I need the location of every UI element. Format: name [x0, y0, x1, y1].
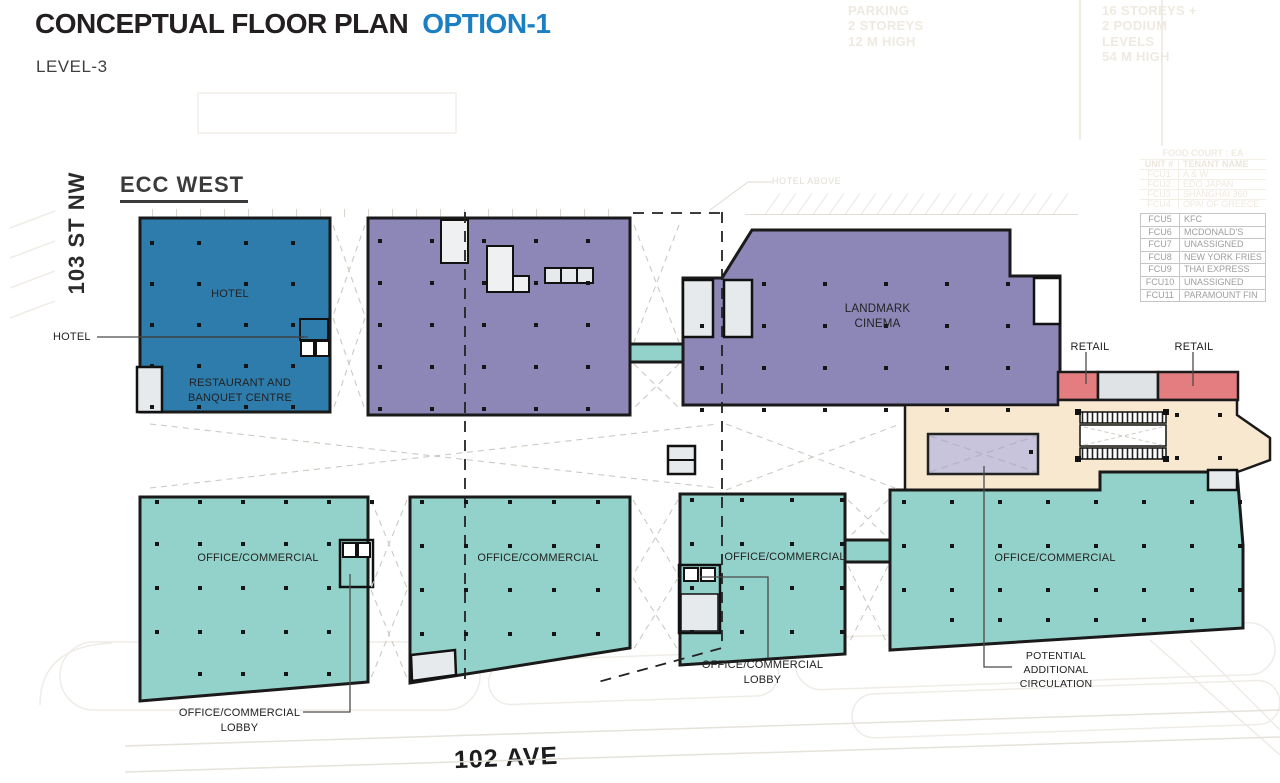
column-dot — [241, 500, 245, 504]
column-dot — [284, 630, 288, 634]
column-dot — [690, 586, 694, 590]
potential-circulation-box — [928, 434, 1038, 474]
column-dot — [508, 588, 512, 592]
office-block-1 — [140, 497, 368, 701]
food-court-tenant: EDO JAPAN — [1179, 180, 1266, 189]
column-dot — [155, 586, 159, 590]
food-court-unit: FCU9 — [1141, 264, 1180, 276]
column-dot — [327, 542, 331, 546]
cinema-right-vestibule — [1034, 278, 1060, 324]
column-dot — [586, 281, 590, 285]
column-dot — [241, 586, 245, 590]
column-dot — [762, 366, 766, 370]
food-court-tenant: THAI EXPRESS — [1180, 264, 1265, 276]
food-court-row: FCU1A & W — [1140, 169, 1266, 179]
column-dot — [884, 366, 888, 370]
food-court-unit: FCU2 — [1140, 180, 1179, 189]
office-label-1: OFFICE/COMMERCIAL — [178, 551, 338, 566]
column-dot — [197, 323, 201, 327]
column-dot — [1046, 618, 1050, 622]
column-dot — [1218, 413, 1222, 417]
column-dot — [762, 282, 766, 286]
column-dot — [945, 366, 949, 370]
column-dot — [327, 672, 331, 676]
column-dot — [155, 500, 159, 504]
column-dot — [464, 500, 468, 504]
column-dot — [840, 498, 844, 502]
column-dot — [198, 500, 202, 504]
column-dot — [586, 239, 590, 243]
column-dot — [1094, 618, 1098, 622]
food-court-unit: FCU7 — [1141, 239, 1180, 251]
food-court-row: FCU11PARAMOUNT FIN — [1141, 290, 1265, 302]
food-court-header-row: UNIT # TENANT NAME — [1140, 159, 1266, 169]
office-lobby-central-callout: OFFICE/COMMERCIAL LOBBY — [695, 658, 830, 687]
potential-circulation-callout: POTENTIAL ADDITIONAL CIRCULATION — [1006, 650, 1106, 692]
column-dot — [945, 408, 949, 412]
retail-label-2: RETAIL — [1159, 340, 1229, 355]
column-dot — [945, 324, 949, 328]
column-dot — [1006, 324, 1010, 328]
column-dot — [823, 282, 827, 286]
column-dot — [902, 500, 906, 504]
column-dot — [284, 586, 288, 590]
food-court-header-tenant: TENANT NAME — [1179, 160, 1266, 169]
column-dot — [1006, 282, 1010, 286]
food-court-row: FCU10UNASSIGNED — [1141, 277, 1265, 290]
food-court-row: FCU2EDO JAPAN — [1140, 179, 1266, 189]
column-dot — [552, 632, 556, 636]
column-dot — [534, 365, 538, 369]
column-dot — [1006, 366, 1010, 370]
column-dot — [1190, 588, 1194, 592]
column-dot — [1175, 413, 1179, 417]
column-dot — [197, 241, 201, 245]
food-court-tenant: OPA! OF GREECE — [1179, 200, 1266, 209]
column-dot — [1142, 500, 1146, 504]
column-dot — [1094, 588, 1098, 592]
column-dot — [508, 544, 512, 548]
food-court-row: FCU6MCDONALD'S — [1141, 227, 1265, 240]
column-dot — [291, 241, 295, 245]
column-dot — [596, 544, 600, 548]
column-dot — [740, 586, 744, 590]
food-court-faint-rows: FCU1A & WFCU2EDO JAPANFCU3SHANGHAI 360FC… — [1140, 169, 1266, 209]
food-court-row: FCU4OPA! OF GREECE — [1140, 199, 1266, 209]
column-dot — [508, 632, 512, 636]
office-2-entry-box — [411, 650, 456, 681]
column-dot — [327, 586, 331, 590]
column-dot — [244, 405, 248, 409]
column-dot — [1238, 588, 1242, 592]
column-dot — [155, 630, 159, 634]
column-dot — [1175, 456, 1179, 460]
column-dot — [740, 498, 744, 502]
food-court-faint-section: UNIT # TENANT NAME FCU1A & WFCU2EDO JAPA… — [1140, 159, 1266, 209]
column-dot — [198, 586, 202, 590]
column-dot — [552, 544, 556, 548]
food-court-table: FOOD COURT : EA UNIT # TENANT NAME FCU1A… — [1140, 148, 1266, 302]
column-dot — [482, 323, 486, 327]
column-dot — [998, 618, 1002, 622]
column-dot — [1238, 544, 1242, 548]
column-dot — [823, 408, 827, 412]
column-dot — [430, 407, 434, 411]
food-court-unit: FCU1 — [1140, 170, 1179, 179]
retail-core-block — [1098, 372, 1158, 400]
column-dot — [998, 588, 1002, 592]
food-court-row: FCU3SHANGHAI 360 — [1140, 189, 1266, 199]
food-court-unit: FCU10 — [1141, 277, 1180, 289]
column-dot — [1190, 618, 1194, 622]
column-dot — [762, 408, 766, 412]
column-dot — [241, 542, 245, 546]
column-dot — [378, 407, 382, 411]
column-dot — [508, 500, 512, 504]
column-dot — [552, 588, 556, 592]
column-dot — [1094, 500, 1098, 504]
hotel-region-label: HOTEL — [185, 287, 275, 302]
column-dot — [420, 588, 424, 592]
column-dot — [284, 500, 288, 504]
food-court-unit: FCU4 — [1140, 200, 1179, 209]
column-dot — [370, 500, 374, 504]
column-dot — [430, 281, 434, 285]
food-court-unit: FCU8 — [1141, 252, 1180, 264]
column-dot — [998, 500, 1002, 504]
food-court-row: FCU9THAI EXPRESS — [1141, 264, 1265, 277]
escalators — [1075, 409, 1169, 462]
office-label-3: OFFICE/COMMERCIAL — [705, 550, 865, 565]
column-dot — [950, 588, 954, 592]
column-dot — [690, 498, 694, 502]
food-court-row: FCU8NEW YORK FRIES — [1141, 252, 1265, 265]
column-dot — [1218, 456, 1222, 460]
column-dot — [464, 632, 468, 636]
column-dot — [482, 239, 486, 243]
food-court-unit: FCU5 — [1141, 214, 1180, 226]
column-dot — [1046, 544, 1050, 548]
column-dot — [762, 324, 766, 328]
column-dot — [464, 544, 468, 548]
column-dot — [150, 405, 154, 409]
column-dot — [284, 542, 288, 546]
column-dot — [244, 282, 248, 286]
column-dot — [430, 365, 434, 369]
column-dot — [198, 630, 202, 634]
column-dot — [378, 323, 382, 327]
column-dot — [840, 542, 844, 546]
column-dot — [420, 632, 424, 636]
retail-block-2 — [1158, 372, 1238, 400]
restaurant-region-label: RESTAURANT AND BANQUET CENTRE — [160, 376, 320, 405]
column-dot — [150, 282, 154, 286]
office-label-2: OFFICE/COMMERCIAL — [458, 551, 618, 566]
hotel-callout: HOTEL — [53, 330, 91, 345]
food-court-tenant: UNASSIGNED — [1180, 277, 1265, 289]
column-dot — [690, 630, 694, 634]
column-dot — [740, 542, 744, 546]
column-dot — [1046, 500, 1050, 504]
food-court-unit: FCU11 — [1141, 290, 1180, 302]
column-dot — [241, 630, 245, 634]
column-dot — [998, 544, 1002, 548]
column-dot — [1190, 500, 1194, 504]
column-dot — [950, 500, 954, 504]
column-dot — [150, 241, 154, 245]
food-court-rows: FCU5KFCFCU6MCDONALD'SFCU7UNASSIGNEDFCU8N… — [1140, 213, 1266, 302]
column-dot — [586, 323, 590, 327]
column-dot — [378, 365, 382, 369]
column-dot — [430, 239, 434, 243]
column-dot — [586, 365, 590, 369]
column-dot — [700, 408, 704, 412]
column-dot — [1238, 500, 1242, 504]
column-dot — [950, 544, 954, 548]
column-dot — [482, 407, 486, 411]
column-dot — [1142, 544, 1146, 548]
column-dot — [690, 542, 694, 546]
column-dot — [790, 586, 794, 590]
column-dot — [197, 364, 201, 368]
column-dot — [198, 672, 202, 676]
column-dot — [840, 586, 844, 590]
food-court-tenant: UNASSIGNED — [1180, 239, 1265, 251]
column-dot — [950, 618, 954, 622]
column-dot — [534, 323, 538, 327]
column-dot — [790, 542, 794, 546]
column-dot — [155, 542, 159, 546]
column-dot — [327, 630, 331, 634]
column-dot — [1046, 588, 1050, 592]
cinema-region-label: LANDMARK CINEMA — [810, 302, 945, 332]
column-dot — [197, 282, 201, 286]
column-dot — [1142, 588, 1146, 592]
food-court-tenant: PARAMOUNT FIN — [1180, 290, 1265, 302]
office-4-stair-box — [1208, 470, 1237, 490]
column-dot — [596, 588, 600, 592]
office-lobby-west-callout: OFFICE/COMMERCIAL LOBBY — [172, 706, 307, 735]
column-dot — [430, 323, 434, 327]
food-court-row: FCU5KFC — [1141, 214, 1265, 227]
column-dot — [945, 282, 949, 286]
column-dot — [291, 364, 295, 368]
column-dot — [902, 544, 906, 548]
column-dot — [534, 407, 538, 411]
column-dot — [534, 281, 538, 285]
food-court-row: FCU7UNASSIGNED — [1141, 239, 1265, 252]
column-dot — [534, 239, 538, 243]
column-dot — [197, 405, 201, 409]
column-dot — [700, 324, 704, 328]
column-dot — [586, 407, 590, 411]
column-dot — [1094, 544, 1098, 548]
column-dot — [378, 281, 382, 285]
column-dot — [244, 364, 248, 368]
column-dot — [244, 241, 248, 245]
column-dot — [790, 498, 794, 502]
retail-label-1: RETAIL — [1055, 340, 1125, 355]
food-court-header-unit: UNIT # — [1140, 160, 1179, 169]
floor-plan-canvas: CONCEPTUAL FLOOR PLANOPTION-1 LEVEL-3 PA… — [0, 0, 1280, 783]
office-label-4: OFFICE/COMMERCIAL — [975, 551, 1135, 566]
column-dot — [823, 366, 827, 370]
column-dot — [241, 672, 245, 676]
column-dot — [420, 544, 424, 548]
column-dot — [378, 239, 382, 243]
food-court-tenant: KFC — [1180, 214, 1265, 226]
column-dot — [884, 282, 888, 286]
column-dot — [464, 588, 468, 592]
column-dot — [1029, 450, 1033, 454]
food-court-unit: FCU6 — [1141, 227, 1180, 239]
food-court-tenant: A & W — [1179, 170, 1266, 179]
column-dot — [291, 405, 295, 409]
column-dot — [740, 630, 744, 634]
food-court-title: FOOD COURT : EA — [1140, 148, 1266, 159]
corridor-kiosk — [668, 446, 695, 474]
column-dot — [482, 365, 486, 369]
podium-cinema-link — [630, 344, 683, 362]
retail-block-1 — [1058, 372, 1098, 400]
food-court-tenant: MCDONALD'S — [1180, 227, 1265, 239]
column-dot — [150, 364, 154, 368]
column-dot — [596, 500, 600, 504]
column-dot — [790, 630, 794, 634]
food-court-tenant: SHANGHAI 360 — [1179, 190, 1266, 199]
column-dot — [1006, 408, 1010, 412]
column-dot — [840, 630, 844, 634]
column-dot — [700, 366, 704, 370]
food-court-unit: FCU3 — [1140, 190, 1179, 199]
column-dot — [902, 588, 906, 592]
column-dot — [291, 323, 295, 327]
column-dot — [552, 500, 556, 504]
column-dot — [327, 500, 331, 504]
column-dot — [1190, 544, 1194, 548]
column-dot — [482, 281, 486, 285]
column-dot — [420, 500, 424, 504]
column-dot — [284, 672, 288, 676]
column-dot — [884, 408, 888, 412]
column-dot — [596, 632, 600, 636]
food-court-tenant: NEW YORK FRIES — [1180, 252, 1265, 264]
column-dot — [1142, 618, 1146, 622]
column-dot — [244, 323, 248, 327]
column-dot — [150, 323, 154, 327]
column-dot — [198, 542, 202, 546]
column-dot — [291, 282, 295, 286]
